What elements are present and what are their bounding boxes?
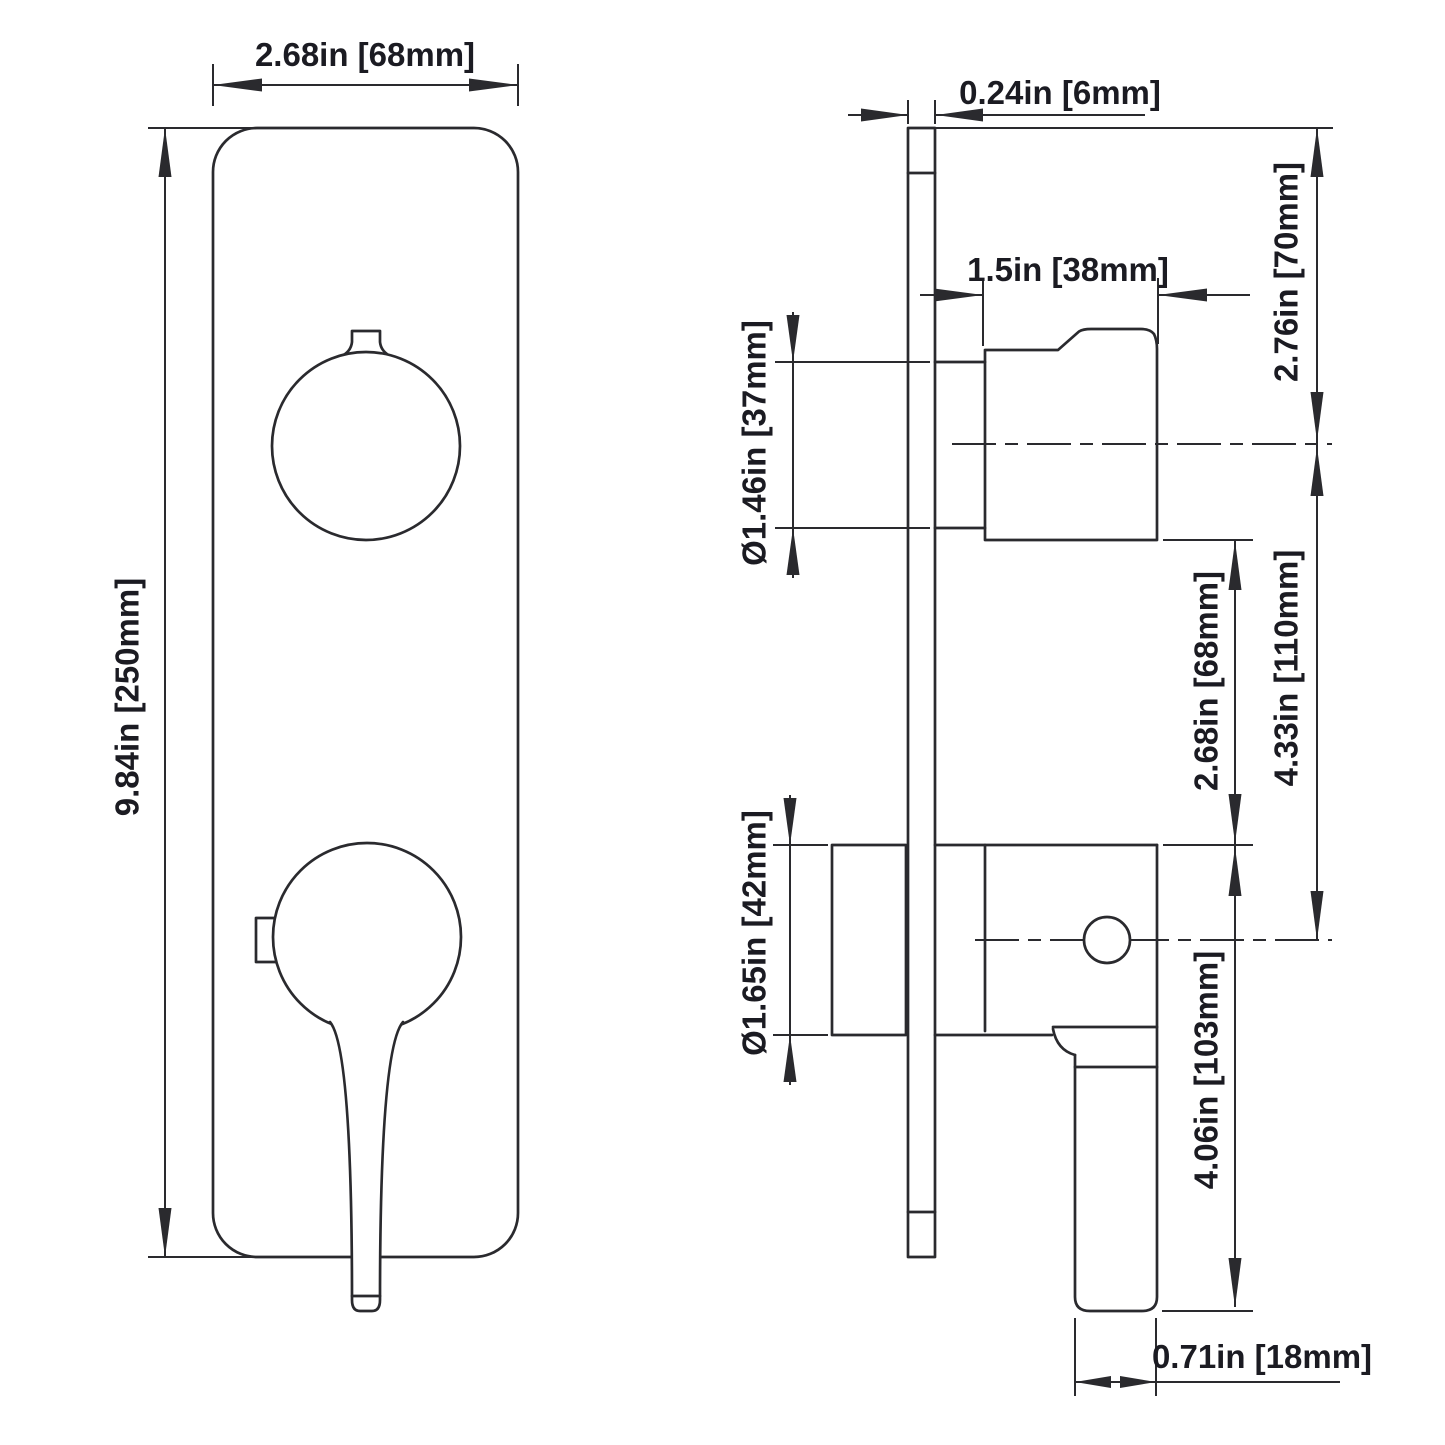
arrow-right-icon	[934, 289, 983, 302]
handle-diameter-label: Ø1.65in [42mm]	[736, 810, 773, 1056]
center-distance-label: 4.33in [110mm]	[1268, 550, 1305, 787]
arrow-up-icon	[784, 1035, 797, 1082]
arrow-left-icon	[1075, 1376, 1111, 1388]
arrow-up-icon	[1229, 541, 1242, 590]
knob-diameter-label: Ø1.46in [37mm]	[736, 320, 773, 566]
handle-gap-label: 2.68in [68mm]	[1188, 571, 1225, 791]
technical-drawing: 2.68in [68mm] 9.84in [250mm]	[0, 0, 1445, 1445]
dim-plate-thickness: 0.24in [6mm]	[848, 74, 1161, 124]
drawing-canvas: 2.68in [68mm] 9.84in [250mm]	[0, 0, 1445, 1445]
dim-center-distance: 4.33in [110mm]	[1268, 447, 1324, 940]
arrow-up-icon	[1229, 847, 1242, 896]
arrow-up-icon	[159, 128, 172, 177]
knob-profile-outline	[985, 329, 1157, 540]
side-top-knob	[935, 329, 1157, 540]
arrow-up-icon	[787, 528, 800, 575]
dim-lever-width: 0.71in [18mm]	[1075, 1318, 1372, 1396]
front-width-label: 2.68in [68mm]	[255, 36, 475, 73]
arrow-left-icon	[1158, 289, 1207, 302]
lever-width-label: 0.71in [18mm]	[1152, 1338, 1372, 1375]
valve-body-back	[832, 845, 906, 1035]
arrow-down-icon	[159, 1208, 172, 1257]
arrow-right-icon	[861, 109, 908, 122]
arrow-right-icon	[469, 79, 518, 92]
lever-length-label: 4.06in [103mm]	[1188, 951, 1225, 1189]
lever-fillet	[1053, 1029, 1075, 1055]
arrow-down-icon	[1311, 392, 1324, 441]
pivot-circle	[1084, 917, 1130, 963]
arrow-left-icon	[213, 79, 262, 92]
arrow-up-icon	[1311, 128, 1324, 177]
side-view: 0.24in [6mm] 1.5in [38mm] 2.76in [70mm] …	[736, 74, 1373, 1396]
top-offset-label: 2.76in [70mm]	[1268, 162, 1305, 382]
arrow-right-icon	[1120, 1376, 1156, 1388]
plate-thickness-label: 0.24in [6mm]	[959, 74, 1161, 111]
lever-stem-mask	[330, 1022, 403, 1311]
side-lower-handle	[935, 845, 1157, 1311]
front-view: 2.68in [68mm] 9.84in [250mm]	[109, 36, 519, 1311]
dim-knob-diameter: Ø1.46in [37mm]	[736, 312, 931, 578]
top-knob-circle	[272, 352, 460, 540]
lower-handle-circle	[273, 843, 461, 1031]
dim-knob-depth: 1.5in [38mm]	[920, 251, 1250, 346]
dim-front-width: 2.68in [68mm]	[213, 36, 518, 106]
arrow-up-icon	[1311, 447, 1324, 496]
knob-depth-label: 1.5in [38mm]	[967, 251, 1169, 288]
dim-top-offset: 2.76in [70mm]	[1268, 128, 1324, 441]
dim-front-height: 9.84in [250mm]	[109, 128, 286, 1257]
dim-handle-diameter: Ø1.65in [42mm]	[736, 795, 829, 1085]
arrow-down-icon	[784, 798, 797, 845]
arrow-down-icon	[1311, 891, 1324, 940]
arrow-down-icon	[787, 315, 800, 362]
front-height-label: 9.84in [250mm]	[109, 578, 146, 816]
side-plate-bar	[908, 128, 935, 1257]
dim-lever-length: 4.06in [103mm]	[1162, 847, 1253, 1311]
arrow-down-icon	[1229, 1258, 1242, 1307]
arrow-down-icon	[1229, 794, 1242, 843]
lever-profile	[1075, 845, 1157, 1311]
dim-handle-gap: 2.68in [68mm]	[1163, 540, 1253, 845]
